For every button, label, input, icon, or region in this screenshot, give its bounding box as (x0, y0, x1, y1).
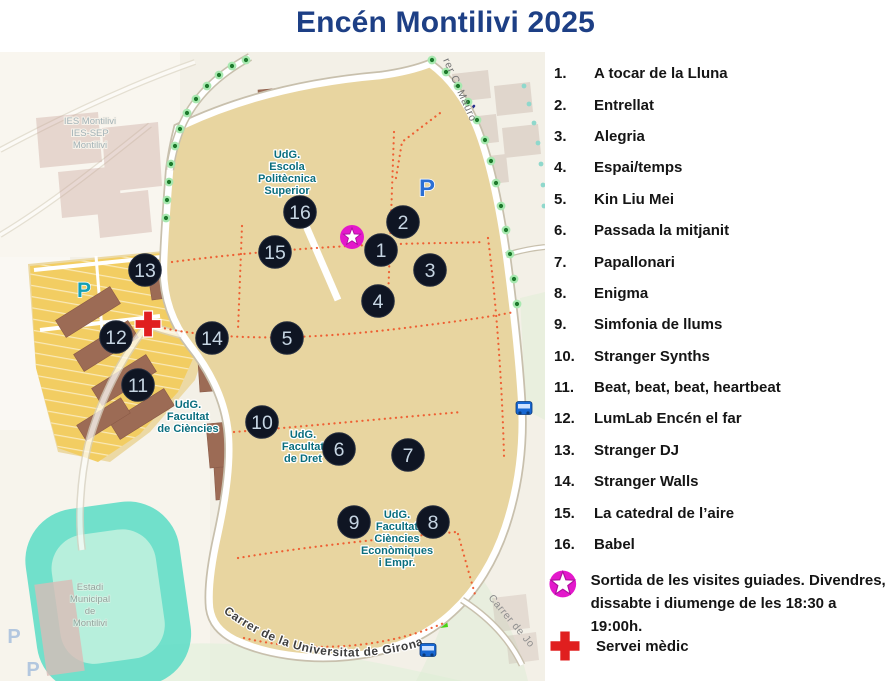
legend-item-3: 3.Alegria (545, 121, 885, 152)
poster: Encén Montilivi 2025 (0, 0, 891, 681)
legend-item-number: 13. (545, 442, 594, 459)
legend-item-label: Stranger DJ (594, 442, 679, 459)
svg-text:12: 12 (105, 327, 127, 349)
map-marker-6: 6 (323, 433, 356, 466)
legend-item-label: Passada la mitjanit (594, 222, 729, 239)
legend-item-2: 2.Entrellat (545, 89, 885, 120)
svg-text:8: 8 (428, 512, 439, 534)
map-marker-15: 15 (259, 236, 292, 269)
legend-item-label: Babel (594, 536, 635, 553)
legend-item-1: 1.A tocar de la Lluna (545, 58, 885, 89)
legend-item-10: 10.Stranger Synths (545, 341, 885, 372)
legend-item-13: 13.Stranger DJ (545, 435, 885, 466)
legend-item-15: 15.La catedral de l’aire (545, 497, 885, 528)
legend-item-number: 10. (545, 348, 594, 365)
legend-item-number: 9. (545, 316, 594, 333)
map-marker-3: 3 (414, 254, 447, 287)
legend-item-14: 14.Stranger Walls (545, 466, 885, 497)
map-marker-16: 16 (284, 196, 317, 229)
legend-item-number: 15. (545, 505, 594, 522)
parking-icon: P (77, 279, 91, 302)
star-note-line1: Sortida de les visites guiades. Divendre… (591, 569, 889, 592)
parking-icon: P (26, 659, 39, 681)
legend-item-number: 7. (545, 254, 594, 271)
bus-stop-icon (420, 644, 436, 657)
legend-item-8: 8.Enigma (545, 278, 885, 309)
legend-item-11: 11.Beat, beat, beat, heartbeat (545, 372, 885, 403)
legend-item-7: 7.Papallonari (545, 246, 885, 277)
legend-item-label: Stranger Synths (594, 348, 710, 365)
svg-text:13: 13 (134, 260, 156, 282)
map-star-icon (340, 225, 364, 249)
map-marker-13: 13 (129, 254, 162, 287)
bus-stop-icon (516, 402, 532, 415)
map-marker-8: 8 (417, 506, 450, 539)
map-marker-4: 4 (362, 285, 395, 318)
svg-text:7: 7 (403, 445, 414, 467)
svg-text:14: 14 (201, 328, 223, 350)
legend-item-label: LumLab Encén el far (594, 410, 742, 427)
legend-item-6: 6.Passada la mitjanit (545, 215, 885, 246)
legend-item-label: Kin Liu Mei (594, 191, 674, 208)
map-svg: Carrer de la Universitat de Girona rer C… (0, 0, 545, 681)
svg-text:10: 10 (251, 412, 273, 434)
legend-item-label: Enigma (594, 285, 648, 302)
parking-icon: P (419, 175, 435, 202)
medic-cross-icon (548, 629, 582, 663)
legend-item-label: Papallonari (594, 254, 675, 271)
legend: 1.A tocar de la Lluna2.Entrellat3.Alegri… (545, 58, 885, 560)
medic-label: Servei mèdic (596, 638, 689, 655)
map-marker-10: 10 (246, 406, 279, 439)
legend-item-number: 11. (545, 379, 594, 396)
legend-item-4: 4.Espai/temps (545, 152, 885, 183)
parking-icon: P (7, 626, 20, 648)
svg-text:15: 15 (264, 242, 286, 264)
legend-item-number: 14. (545, 473, 594, 490)
svg-text:16: 16 (289, 202, 311, 224)
map-marker-14: 14 (196, 322, 229, 355)
medic-note: Servei mèdic (548, 629, 689, 663)
legend-item-number: 2. (545, 97, 594, 114)
map-marker-1: 1 (365, 234, 398, 267)
map-marker-7: 7 (392, 439, 425, 472)
map-marker-11: 11 (122, 369, 155, 402)
legend-item-label: Beat, beat, beat, heartbeat (594, 379, 781, 396)
legend-item-16: 16.Babel (545, 529, 885, 560)
svg-text:4: 4 (373, 291, 384, 313)
legend-item-label: Simfonia de llums (594, 316, 722, 333)
legend-item-number: 3. (545, 128, 594, 145)
legend-item-label: A tocar de la Lluna (594, 65, 728, 82)
legend-item-label: Alegria (594, 128, 645, 145)
legend-list: 1.A tocar de la Lluna2.Entrellat3.Alegri… (545, 58, 885, 560)
legend-item-label: Espai/temps (594, 159, 682, 176)
legend-item-label: La catedral de l’aire (594, 505, 734, 522)
star-icon (545, 566, 581, 602)
svg-text:11: 11 (128, 375, 148, 397)
legend-item-label: Entrellat (594, 97, 654, 114)
map-marker-12: 12 (100, 321, 133, 354)
legend-item-12: 12.LumLab Encén el far (545, 403, 885, 434)
map-marker-5: 5 (271, 322, 304, 355)
svg-text:2: 2 (398, 212, 409, 234)
legend-item-number: 5. (545, 191, 594, 208)
legend-item-number: 4. (545, 159, 594, 176)
legend-item-9: 9.Simfonia de llums (545, 309, 885, 340)
map-marker-2: 2 (387, 206, 420, 239)
svg-text:3: 3 (425, 260, 436, 282)
legend-item-5: 5.Kin Liu Mei (545, 184, 885, 215)
svg-text:9: 9 (349, 512, 360, 534)
legend-item-number: 1. (545, 65, 594, 82)
legend-item-label: Stranger Walls (594, 473, 698, 490)
legend-item-number: 6. (545, 222, 594, 239)
map-marker-9: 9 (338, 506, 371, 539)
svg-text:6: 6 (334, 439, 345, 461)
svg-text:5: 5 (282, 328, 293, 350)
guided-tour-note: Sortida de les visites guiades. Divendre… (545, 566, 889, 638)
campus-map: Carrer de la Universitat de Girona rer C… (0, 0, 545, 681)
legend-item-number: 12. (545, 410, 594, 427)
legend-item-number: 8. (545, 285, 594, 302)
svg-text:1: 1 (376, 240, 387, 262)
legend-item-number: 16. (545, 536, 594, 553)
